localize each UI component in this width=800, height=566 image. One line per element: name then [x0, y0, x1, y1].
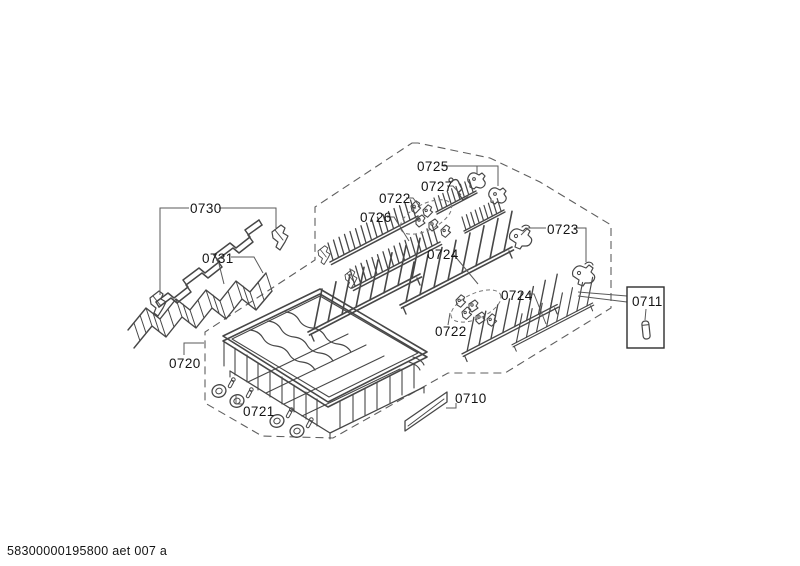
diagram-canvas: 0730 0731 0720 0721 0722 0726 0725 0727 … [0, 0, 800, 566]
label-0723: 0723 [547, 222, 579, 237]
leader-0720 [184, 343, 204, 355]
wheel [210, 377, 235, 399]
parts-diagram-page: 0730 0731 0720 0721 0722 0726 0725 0727 … [0, 0, 800, 566]
tine-row [308, 238, 422, 341]
label-0730: 0730 [190, 201, 222, 216]
label-0710: 0710 [455, 391, 487, 406]
label-0722-bottom: 0722 [435, 324, 467, 339]
label-0731: 0731 [202, 251, 234, 266]
label-0722-top: 0722 [379, 191, 411, 206]
wheel [288, 417, 313, 439]
label-0724-top: 0724 [427, 247, 459, 262]
clips-0725 [468, 173, 506, 204]
label-0726: 0726 [360, 210, 392, 225]
label-0727: 0727 [421, 179, 453, 194]
label-0720: 0720 [169, 356, 201, 371]
part-labels: 0730 0731 0720 0721 0722 0726 0725 0727 … [169, 159, 663, 419]
cup-shelf-wire-0730 [150, 220, 288, 316]
label-0721: 0721 [243, 404, 275, 419]
document-code: 58300000195800 aet 007 a [7, 544, 167, 558]
label-0724-bottom: 0724 [501, 288, 533, 303]
label-0711: 0711 [632, 294, 663, 309]
label-0725: 0725 [417, 159, 449, 174]
model-strip-0710 [405, 392, 447, 431]
folding-rack-0731 [128, 273, 272, 348]
wire-end-bracket-right [272, 225, 288, 250]
